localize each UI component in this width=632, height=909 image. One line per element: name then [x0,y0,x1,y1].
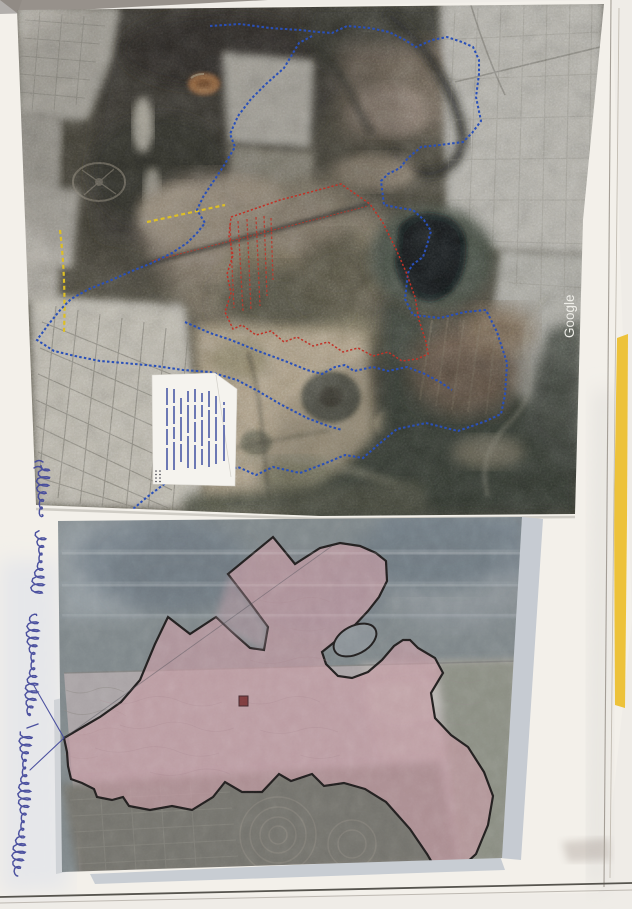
svg-text:Google: Google [562,294,577,338]
